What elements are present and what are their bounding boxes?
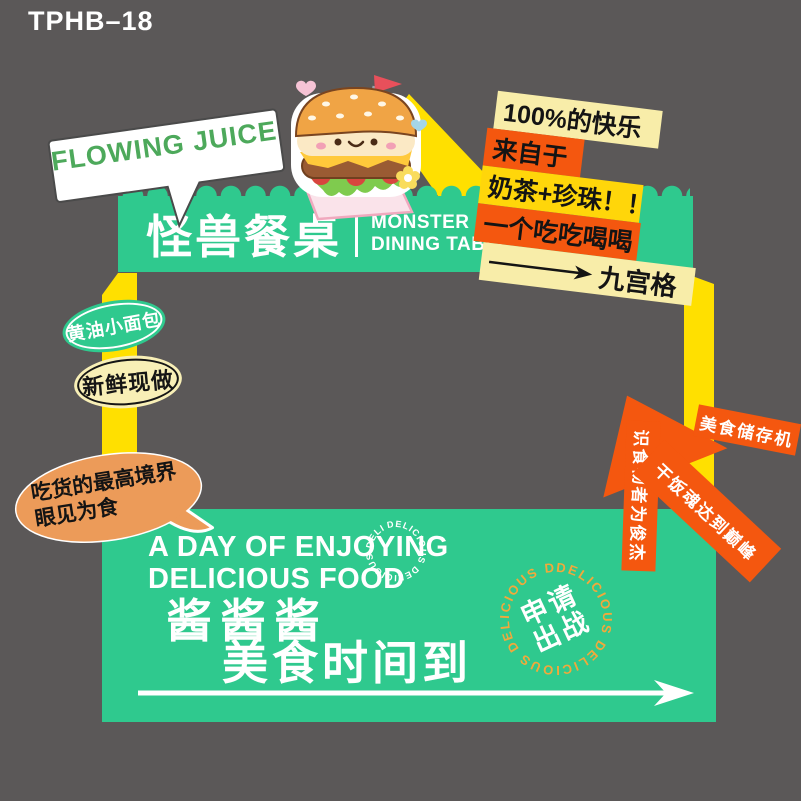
badge-freshly-made-label: 新鲜现做 [81, 362, 175, 402]
panel-arrow-icon [138, 676, 698, 710]
arrow-side-label: 识食物者为俊杰 [626, 429, 656, 563]
promo-sticker-block: 100%的快乐 来自于 奶茶+珍珠！！ 一个吃吃喝喝 九宫格 [469, 90, 714, 306]
right-arrow-icon [488, 253, 593, 284]
heart-icon [296, 81, 316, 96]
poster-stage: TPHB–18 怪兽餐桌 MONSTER DINING TABLE [0, 0, 801, 801]
orange-arrow-tail-vertical: 识食物者为俊杰 [621, 420, 660, 571]
product-code: TPHB–18 [28, 6, 154, 37]
battle-stamp: DELICIOUS DELICIOUS DELICIOUS DELICIOUS … [496, 559, 616, 679]
